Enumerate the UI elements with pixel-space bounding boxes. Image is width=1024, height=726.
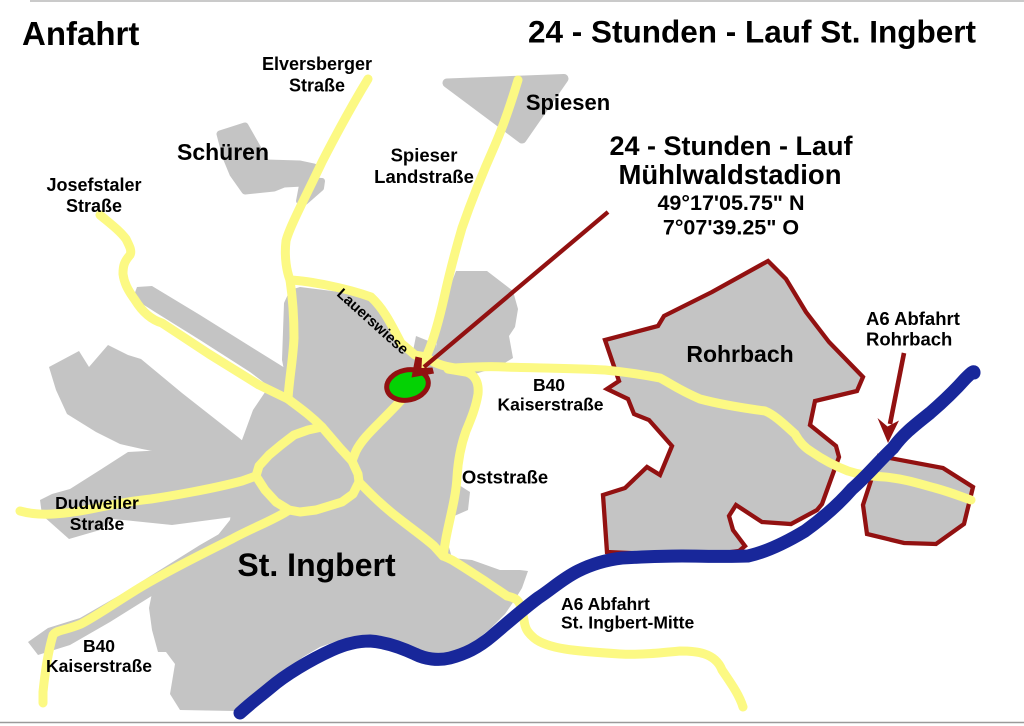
svg-text:49°17'05.75" N: 49°17'05.75" N bbox=[657, 191, 804, 215]
svg-text:Elversberger: Elversberger bbox=[262, 54, 372, 74]
svg-text:Straße: Straße bbox=[70, 514, 125, 534]
svg-text:St. Ingbert: St. Ingbert bbox=[237, 547, 396, 583]
svg-text:Schüren: Schüren bbox=[177, 139, 269, 165]
svg-text:24 - Stunden - Lauf St. Ingber: 24 - Stunden - Lauf St. Ingbert bbox=[528, 14, 977, 50]
svg-text:Dudweiler: Dudweiler bbox=[55, 493, 139, 513]
svg-text:Kaiserstraße: Kaiserstraße bbox=[46, 656, 152, 676]
svg-text:Mühlwaldstadion: Mühlwaldstadion bbox=[618, 159, 841, 190]
svg-text:St. Ingbert-Mitte: St. Ingbert-Mitte bbox=[561, 613, 694, 633]
svg-text:Spieser: Spieser bbox=[391, 145, 458, 166]
svg-text:B40: B40 bbox=[83, 636, 115, 656]
svg-text:Kaiserstraße: Kaiserstraße bbox=[497, 395, 603, 415]
svg-text:Rohrbach: Rohrbach bbox=[686, 341, 793, 367]
svg-text:Oststraße: Oststraße bbox=[462, 467, 548, 488]
svg-text:Landstraße: Landstraße bbox=[374, 166, 474, 187]
svg-text:A6 Abfahrt: A6 Abfahrt bbox=[866, 308, 960, 329]
svg-text:B40: B40 bbox=[533, 375, 565, 395]
svg-text:24 - Stunden - Lauf: 24 - Stunden - Lauf bbox=[610, 131, 854, 161]
svg-text:Straße: Straße bbox=[66, 196, 122, 216]
svg-text:Rohrbach: Rohrbach bbox=[866, 329, 952, 350]
svg-text:Spiesen: Spiesen bbox=[526, 90, 610, 115]
svg-text:A6 Abfahrt: A6 Abfahrt bbox=[561, 594, 650, 614]
svg-text:Straße: Straße bbox=[289, 76, 345, 96]
svg-text:7°07'39.25" O: 7°07'39.25" O bbox=[663, 216, 799, 240]
svg-text:Anfahrt: Anfahrt bbox=[22, 15, 139, 52]
svg-text:Josefstaler: Josefstaler bbox=[46, 175, 141, 195]
